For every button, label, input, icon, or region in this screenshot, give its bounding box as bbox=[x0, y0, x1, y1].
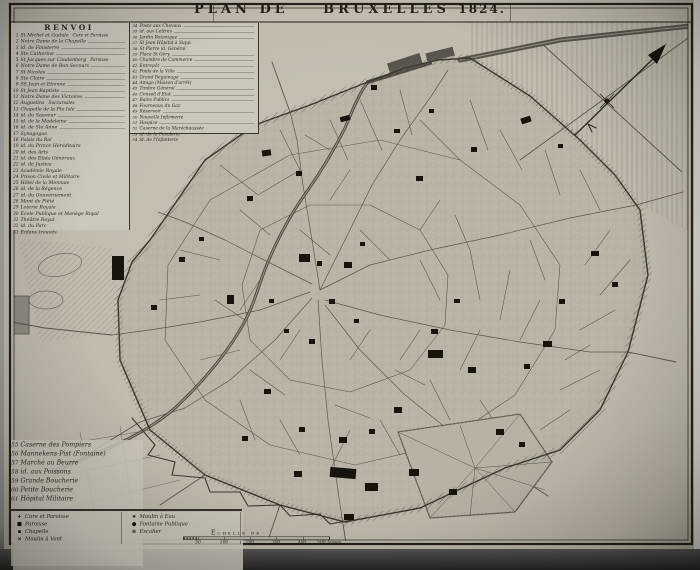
scale-tick: 400 bbox=[298, 540, 307, 545]
entry-label: Enfans trouvés bbox=[21, 229, 57, 235]
entry-number: 59 bbox=[11, 476, 19, 485]
dotted-leader bbox=[161, 66, 254, 67]
entry-number: 16 bbox=[11, 125, 19, 131]
entry-label: St Pierre id. Général bbox=[140, 46, 186, 51]
entry-label: id. de Finisterre bbox=[21, 45, 60, 51]
entry-label: Loterie Royale bbox=[21, 205, 56, 211]
dotted-leader bbox=[85, 97, 125, 98]
dotted-leader bbox=[160, 123, 254, 124]
scale-tick: 100 bbox=[220, 540, 229, 545]
entry-label: Place St Géry bbox=[140, 52, 170, 57]
symbol-icon: ● bbox=[129, 521, 140, 529]
dotted-leader bbox=[59, 128, 125, 129]
entry-label: Hôpital Militaire bbox=[21, 494, 74, 503]
entry-number: 24 bbox=[11, 174, 19, 180]
dotted-leader bbox=[47, 73, 125, 74]
entry-label: Synagogue bbox=[21, 131, 48, 137]
scale-tick: 200 bbox=[246, 540, 255, 545]
symbol-entry: ▪ Chapelle bbox=[14, 528, 118, 536]
entry-number: 53 bbox=[130, 131, 138, 136]
entry-number: 29 bbox=[11, 205, 19, 211]
entry-label: Palais du Roi bbox=[21, 137, 52, 143]
entry-number: 58 bbox=[11, 467, 19, 476]
entry-number: 6 bbox=[11, 64, 19, 70]
symbol-label: Paroisse bbox=[25, 521, 47, 529]
entry-number: 31 bbox=[11, 217, 19, 223]
entry-label: id. aux Lettres bbox=[140, 29, 172, 34]
entry-number: 51 bbox=[130, 120, 138, 125]
entry-number: 50 bbox=[130, 114, 138, 119]
legend-list-2: 34 Poste aux Chevaux 35 id. aux Lettres bbox=[130, 23, 256, 143]
symbol-icon: ■ bbox=[14, 521, 25, 529]
dotted-leader bbox=[163, 112, 254, 113]
legend-entry: 57 Marché au Beurre bbox=[11, 458, 141, 467]
entry-label: Grand Béguinage bbox=[140, 75, 179, 80]
legend-entry: 60 Petite Boucherie bbox=[11, 485, 141, 494]
entry-number: 10 bbox=[11, 88, 19, 94]
entry-label: St Jacques sur Caudenberg bbox=[21, 57, 87, 63]
dotted-leader bbox=[67, 85, 125, 86]
entry-label: Hospice bbox=[140, 120, 158, 125]
entry-label: Mannekens-Pist (Fontaine) bbox=[21, 449, 106, 458]
entry-number: 54 bbox=[130, 137, 138, 142]
entry-label: Théâtre Royal bbox=[21, 217, 55, 223]
legend-divider-rule bbox=[9, 509, 242, 511]
entry-number: 40 bbox=[130, 57, 138, 62]
scale-ticks: 50 100 200 300 400 500 Aunes bbox=[183, 540, 337, 546]
dotted-leader bbox=[88, 42, 125, 43]
entry-label: St Jean Baptiste bbox=[21, 88, 60, 94]
entry-number: 41 bbox=[130, 63, 138, 68]
entry-label: id. de Ste Anne bbox=[21, 125, 58, 131]
dotted-leader bbox=[91, 67, 125, 68]
entry-label: Poids de la Ville bbox=[140, 69, 175, 74]
entry-number: 15 bbox=[11, 119, 19, 125]
title-plan-de: PLAN DE bbox=[194, 2, 289, 17]
entry-number: 2 bbox=[11, 39, 19, 45]
entry-label: Entrepôt bbox=[140, 63, 160, 68]
entry-number: 5 bbox=[11, 58, 19, 64]
entry-number: 28 bbox=[11, 199, 19, 205]
scale-bar: Echelle de 50 100 200 300 400 500 Aunes bbox=[183, 529, 339, 563]
symbol-entry: + Cure et Paroisse bbox=[14, 513, 118, 521]
dotted-leader bbox=[47, 79, 125, 80]
entry-number: 56 bbox=[11, 449, 19, 458]
entry-number: 7 bbox=[11, 70, 19, 76]
legend-entry: 59 Grande Boucherie bbox=[11, 476, 141, 485]
entry-label: id. du Parc bbox=[21, 223, 47, 229]
symbols-left-column: + Cure et Paroisse ■ Paroisse ▪ Chapelle bbox=[13, 512, 122, 544]
dotted-leader bbox=[181, 78, 254, 79]
entry-number: 36 bbox=[130, 34, 138, 39]
legend-entry: 58 id. aux Poissons bbox=[11, 467, 141, 476]
entry-label: Ste Claire bbox=[21, 76, 45, 82]
dotted-leader bbox=[179, 38, 254, 39]
entry-label: id. du Prince Héréditaire bbox=[21, 143, 81, 149]
dotted-leader bbox=[177, 72, 254, 73]
entry-number: 25 bbox=[11, 181, 19, 187]
entry-label: Conseil d'Etat bbox=[140, 92, 171, 97]
entry-label: Jardin Botanique bbox=[140, 35, 178, 40]
symbol-icon: × bbox=[14, 536, 25, 544]
entry-label: Petite Boucherie bbox=[21, 485, 74, 494]
entry-label: Réservoir bbox=[140, 109, 162, 114]
entry-label: Caserne des Pompiers bbox=[21, 440, 92, 449]
legend-entry: 33 Enfans trouvés bbox=[11, 229, 127, 235]
entry-label: Poste aux Chevaux bbox=[140, 24, 182, 29]
legend-entry: 54 id. de l'Infanterie bbox=[130, 137, 256, 143]
entry-number: 17 bbox=[11, 131, 19, 137]
symbol-icon: + bbox=[14, 513, 25, 521]
symbol-entry: × Moulin à Vent bbox=[14, 536, 118, 544]
dotted-leader bbox=[69, 122, 125, 123]
legend-entry: 61 Hôpital Militaire bbox=[11, 494, 141, 503]
entry-label: St Michel et Gudule bbox=[21, 33, 69, 39]
legend-list-lower: 55 Caserne des Pompiers 56 Mannekens-Pis… bbox=[11, 440, 141, 503]
entry-number: 13 bbox=[11, 107, 19, 113]
symbol-entry: ■ Paroisse bbox=[14, 521, 118, 529]
entry-number: 43 bbox=[130, 74, 138, 79]
entry-label: id. de Justice bbox=[21, 162, 52, 168]
entry-label: id. de l'Infanterie bbox=[140, 138, 179, 143]
entry-label: Prison Civile et Militaire bbox=[21, 174, 80, 180]
entry-label: St Jean Hôpital à Supp. bbox=[140, 41, 192, 46]
entry-label: id. des Etats Généraux bbox=[21, 155, 76, 161]
entry-label: id. de la Cavalerie bbox=[140, 132, 180, 137]
entry-number: 61 bbox=[11, 494, 19, 503]
entry-label: Nouvelle Infirmerie bbox=[140, 115, 184, 120]
entry-number: 44 bbox=[130, 80, 138, 85]
entry-label: Hôtel de la Monnaie bbox=[21, 180, 70, 186]
entry-number: 34 bbox=[130, 23, 138, 28]
scale-label: Echelle de bbox=[211, 529, 337, 536]
entry-label: Académie Royale bbox=[21, 168, 62, 174]
entry-number: 45 bbox=[130, 86, 138, 91]
entry-label: Chapelle de la Pte Isle bbox=[21, 106, 75, 112]
entry-number: 42 bbox=[130, 69, 138, 74]
symbol-icon: ∗ bbox=[129, 513, 140, 521]
entry-number: 9 bbox=[11, 82, 19, 88]
photo-edge-strip bbox=[694, 0, 700, 549]
entry-label: Augustins bbox=[21, 100, 45, 106]
symbol-entry: ● Fontaine Publique bbox=[129, 521, 238, 529]
entry-label: Bains Publics bbox=[140, 98, 170, 103]
entry-label: id. du Gouvernement bbox=[21, 192, 72, 198]
entry-number: 55 bbox=[11, 440, 19, 449]
entry-number: 3 bbox=[11, 45, 19, 51]
entry-label: id. aux Poissons bbox=[21, 467, 71, 476]
symbol-label: Escalier bbox=[140, 528, 162, 536]
dotted-leader bbox=[174, 32, 254, 33]
entry-number: 14 bbox=[11, 113, 19, 119]
scale-tick: 500 Aunes bbox=[317, 540, 341, 545]
entry-label: id. des Arts bbox=[21, 149, 48, 155]
symbol-icon: ▪ bbox=[14, 528, 25, 536]
entry-label: Notre Dame de Bon Secours bbox=[21, 63, 90, 69]
symbol-label: Cure et Paroisse bbox=[25, 513, 69, 521]
entry-label: id. de la Régence bbox=[21, 186, 63, 192]
entry-number: 20 bbox=[11, 150, 19, 156]
entry-label: Caserne de la Maréchaussée bbox=[140, 126, 204, 131]
entry-number: 12 bbox=[11, 101, 19, 107]
legend-renvoi-column1: RENVOI 1 St Michel et Gudule Cure et Par… bbox=[11, 23, 130, 230]
entry-label: SS Jean et Etienne bbox=[21, 82, 66, 88]
entry-label: Ste Catherine bbox=[21, 51, 54, 57]
dotted-leader bbox=[173, 95, 254, 96]
entry-label: id. de la Madeleine bbox=[21, 119, 67, 125]
entry-number: 23 bbox=[11, 168, 19, 174]
scale-tick: 50 bbox=[195, 540, 201, 545]
entry-number: 4 bbox=[11, 51, 19, 57]
entry-label: Marché au Beurre bbox=[21, 458, 79, 467]
legend-renvoi-column2: 34 Poste aux Chevaux 35 id. aux Lettres bbox=[130, 23, 259, 134]
entry-label: Mont de Piété bbox=[21, 199, 55, 205]
legend-entry: 56 Mannekens-Pist (Fontaine) bbox=[11, 449, 141, 458]
entry-number: 27 bbox=[11, 193, 19, 199]
symbol-icon: ≡ bbox=[129, 528, 140, 536]
entry-number: 19 bbox=[11, 144, 19, 150]
photo-of-map: PLAN DE BRUXELLES 1824. RENVOI 1 St Mich… bbox=[0, 0, 700, 570]
entry-number: 26 bbox=[11, 187, 19, 193]
symbol-entry: ∗ Moulin à Eau bbox=[129, 513, 238, 521]
entry-number: 60 bbox=[11, 485, 19, 494]
legend-list-1: 1 St Michel et Gudule Cure et Paroisse 2… bbox=[11, 33, 127, 236]
entry-label: Amigo (Maison d'arrêt) bbox=[140, 81, 192, 86]
entry-label: Ecole Publique et Manège Royal bbox=[21, 211, 99, 217]
entry-number: 1 bbox=[11, 33, 19, 39]
entry-note: Paroisse bbox=[90, 58, 108, 64]
entry-number: 30 bbox=[11, 211, 19, 217]
symbol-label: Moulin à Vent bbox=[25, 536, 62, 544]
entry-label: Grande Boucherie bbox=[21, 476, 79, 485]
dotted-leader bbox=[172, 55, 254, 56]
entry-number: 39 bbox=[130, 52, 138, 57]
entry-label: Timbre Général bbox=[140, 86, 175, 91]
legend-heading: RENVOI bbox=[11, 23, 127, 33]
entry-label: Fourneaux du Gaz bbox=[140, 103, 181, 108]
entry-number: 11 bbox=[11, 94, 19, 100]
entry-number: 8 bbox=[11, 76, 19, 82]
entry-number: 21 bbox=[11, 156, 19, 162]
dotted-leader bbox=[177, 89, 254, 90]
entry-label: Notre Dame des Victoires bbox=[21, 94, 83, 100]
entry-number: 18 bbox=[11, 138, 19, 144]
entry-number: 22 bbox=[11, 162, 19, 168]
entry-number: 33 bbox=[11, 230, 19, 236]
entry-label: Notre Dame de la Chapelle bbox=[21, 39, 86, 45]
dotted-leader bbox=[184, 27, 254, 28]
dotted-leader bbox=[58, 116, 125, 117]
title-city: BRUXELLES bbox=[323, 2, 450, 17]
symbol-label: Chapelle bbox=[25, 528, 48, 536]
entry-label: St Nicolas bbox=[21, 69, 46, 75]
entry-number: 32 bbox=[11, 224, 19, 230]
entry-number: 38 bbox=[130, 46, 138, 51]
scale-tick: 300 bbox=[272, 540, 281, 545]
dotted-leader bbox=[77, 110, 125, 111]
dotted-leader bbox=[61, 91, 125, 92]
entry-number: 47 bbox=[130, 97, 138, 102]
entry-label: id. du Sauveur bbox=[21, 112, 56, 118]
entry-number: 48 bbox=[130, 103, 138, 108]
entry-number: 37 bbox=[130, 40, 138, 45]
entry-number: 35 bbox=[130, 29, 138, 34]
entry-number: 46 bbox=[130, 91, 138, 96]
legend-entry: 55 Caserne des Pompiers bbox=[11, 440, 141, 449]
entry-number: 52 bbox=[130, 126, 138, 131]
dotted-leader bbox=[171, 101, 254, 102]
dotted-leader bbox=[61, 48, 125, 49]
symbol-label: Moulin à Eau bbox=[140, 513, 175, 521]
map-title: PLAN DE BRUXELLES 1824. bbox=[0, 2, 700, 17]
entry-number: 57 bbox=[11, 458, 19, 467]
dotted-leader bbox=[56, 54, 125, 55]
entry-label: Chambre de Commerce bbox=[140, 58, 193, 63]
entry-number: 49 bbox=[130, 109, 138, 114]
title-year: 1824. bbox=[458, 2, 506, 16]
symbol-label: Fontaine Publique bbox=[140, 521, 188, 529]
dotted-leader bbox=[194, 61, 254, 62]
